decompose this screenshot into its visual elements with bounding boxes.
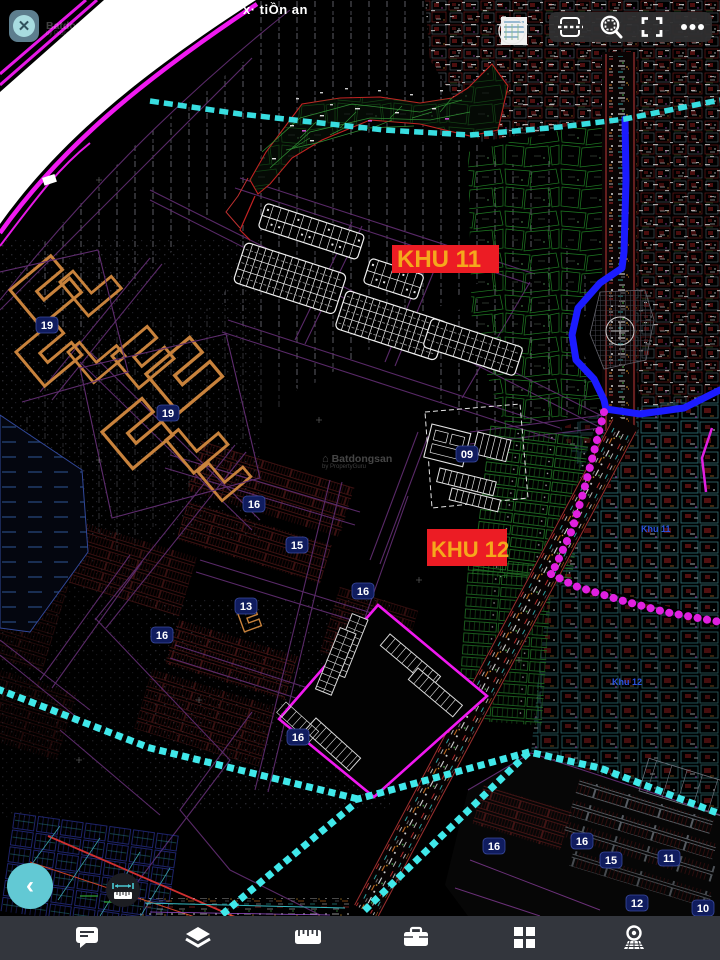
svg-text:16: 16 <box>357 586 369 598</box>
svg-text:16: 16 <box>488 841 500 853</box>
svg-text:13: 13 <box>240 601 252 613</box>
svg-text:KHU 11: KHU 11 <box>397 246 481 273</box>
svg-text:KHU 12: KHU 12 <box>431 537 509 562</box>
svg-text:19: 19 <box>162 408 174 420</box>
svg-text:10: 10 <box>697 903 709 915</box>
svg-text:15: 15 <box>605 855 617 867</box>
svg-text:09: 09 <box>461 449 473 461</box>
svg-text:19: 19 <box>41 320 53 332</box>
svg-text:Khu 12: Khu 12 <box>612 677 642 687</box>
svg-text:16: 16 <box>248 499 260 511</box>
svg-text:15: 15 <box>291 540 303 552</box>
svg-text:16: 16 <box>156 630 168 642</box>
svg-text:11: 11 <box>663 853 675 865</box>
svg-text:Khu 11: Khu 11 <box>641 524 671 534</box>
svg-text:16: 16 <box>292 732 304 744</box>
svg-text:12: 12 <box>631 898 643 910</box>
svg-text:16: 16 <box>576 836 588 848</box>
